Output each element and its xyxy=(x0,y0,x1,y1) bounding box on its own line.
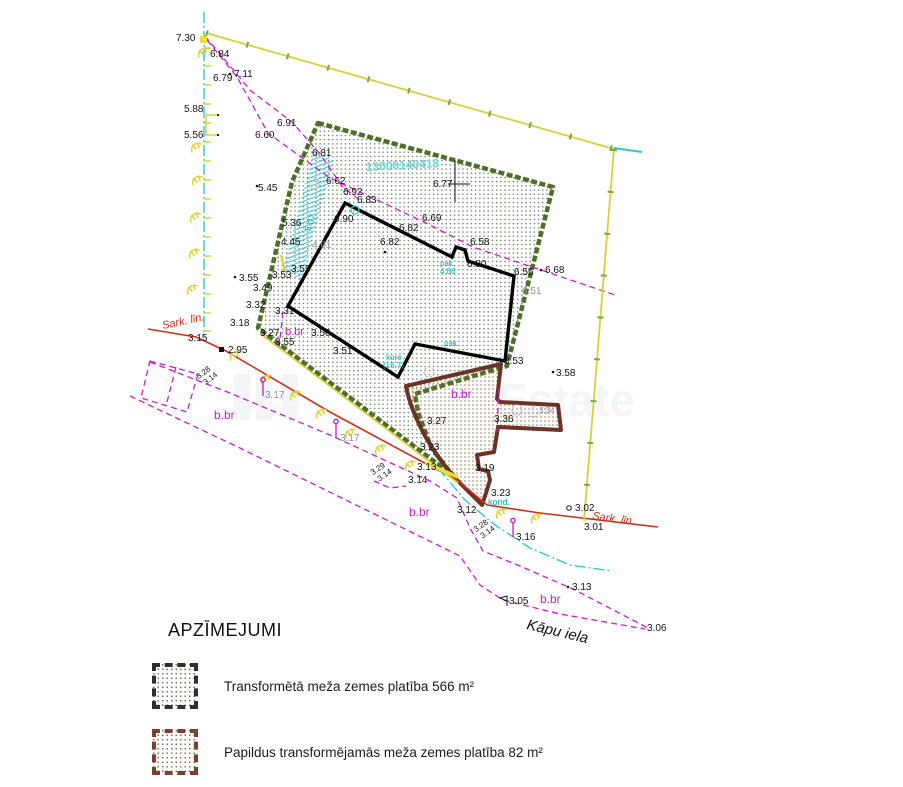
elevation-label: 3.51 xyxy=(333,346,353,357)
area-code-label: b.br xyxy=(540,592,561,606)
elevation-label: 4.45 xyxy=(281,237,301,248)
tree-icon xyxy=(376,445,385,454)
elevation-label: 3.53 xyxy=(504,356,524,367)
additional-forest-swatch xyxy=(152,729,198,775)
elevation-label: 6.58 xyxy=(470,237,490,248)
elevation-label: 3.17 xyxy=(265,390,285,401)
tree-icon xyxy=(317,409,326,418)
tree-icon xyxy=(190,249,199,258)
elevation-label: 3.23 xyxy=(420,442,440,453)
elevation-label: 3.13 xyxy=(417,462,437,473)
sign-post-icon xyxy=(334,419,338,438)
elevation-label: 3.19 xyxy=(475,463,495,474)
elevation-label: 3.53 xyxy=(272,270,292,281)
legend-item-additional-forest: Papildus transformējamās meža zemes plat… xyxy=(152,729,543,775)
elevation-label: 6.68 xyxy=(545,265,565,276)
area-code-label: b.br xyxy=(451,387,472,401)
fence-right xyxy=(584,149,614,521)
tree-icon xyxy=(532,514,541,523)
gate-bracket-icon xyxy=(206,115,218,135)
road-band-lower xyxy=(130,396,645,629)
elevation-label: 3.31 xyxy=(275,306,295,317)
area-code-label: b.br xyxy=(409,505,430,519)
bracket-dot xyxy=(217,134,219,136)
elevation-label: 6.90 xyxy=(334,214,354,225)
sign-head xyxy=(334,419,338,423)
pole-square-icon xyxy=(200,36,207,43)
tree-icon xyxy=(193,176,202,185)
corner-tick xyxy=(614,148,642,152)
elevation-label: 3.49 xyxy=(253,283,273,294)
elevation-label: 3.55 xyxy=(291,264,311,275)
elevation-label: 3.12 xyxy=(457,505,477,516)
elevation-label: 7.30 xyxy=(176,33,196,44)
elevation-label: 3.02 xyxy=(575,503,595,514)
tree-icon xyxy=(188,285,197,294)
map-text-label: pak. xyxy=(444,339,459,348)
sign-post-icon xyxy=(511,518,515,537)
elevation-label: 5.88 xyxy=(184,104,204,115)
watermark-bar xyxy=(234,374,250,420)
elevation-label: 6.69 xyxy=(422,213,442,224)
survey-plan-page: Estate 7.306.847.116.795.885.566.916.606… xyxy=(0,0,903,787)
road-rect-divider xyxy=(166,367,176,406)
elevation-label: 6.84 xyxy=(210,49,230,60)
elevation-label: 3.01 xyxy=(584,522,604,533)
elevation-label: 3.16 xyxy=(516,532,536,543)
elevation-label: 6.82 xyxy=(399,223,419,234)
elevation-label: 4.61 xyxy=(312,240,332,251)
elevation-label: 3.55 xyxy=(239,273,259,284)
tree-icon xyxy=(192,143,201,152)
elevation-label: 6.55 xyxy=(514,267,534,278)
legend-item-label: Papildus transformējamās meža zemes plat… xyxy=(224,745,543,760)
flag-mark-icon xyxy=(500,596,507,606)
curb-height-fraction: 3.283.14 xyxy=(194,363,219,388)
point-dot xyxy=(234,276,237,279)
elevation-label: 3.27 xyxy=(427,416,447,427)
bracket-dot xyxy=(217,114,219,116)
legend-title: APZĪMEJUMI xyxy=(168,620,282,641)
boundary-mark-square xyxy=(219,347,224,352)
road-rect xyxy=(141,361,198,412)
point-dot xyxy=(552,371,555,374)
elevation-label: 6.82 xyxy=(380,237,400,248)
elevation-label: 3.17 xyxy=(340,433,360,444)
elevation-label: 4.86 xyxy=(440,267,456,276)
elevation-label: 3.32 xyxy=(246,300,266,311)
elevation-label: 6.77 xyxy=(433,179,453,190)
elevation-label: 6.51 xyxy=(522,286,542,297)
legend-item-transformed-forest: Transformētā meža zemes platība 566 m² xyxy=(152,663,474,709)
elevation-label: 3.36 xyxy=(494,414,514,425)
point-dot xyxy=(384,251,387,254)
transformed-forest-swatch xyxy=(152,663,198,709)
elevation-label: 3.15 xyxy=(188,333,208,344)
elevation-label: 3.56 xyxy=(311,328,331,339)
legend-item-label: Transformētā meža zemes platība 566 m² xyxy=(224,679,474,694)
point-dot xyxy=(540,269,543,272)
elevation-label: 5.36 xyxy=(282,218,302,229)
sign-head xyxy=(511,518,515,522)
elevation-label: 5.45 xyxy=(258,183,278,194)
map-text-label: kond. xyxy=(488,497,510,507)
elevation-label: 3.58 xyxy=(556,368,576,379)
elevation-label: 3.05 xyxy=(509,596,529,607)
elevation-label: 6.62 xyxy=(326,176,346,187)
tree-icon xyxy=(497,509,506,518)
elevation-label: 6.81 xyxy=(312,148,332,159)
elevation-label: 3.55 xyxy=(275,337,295,348)
tree-icon xyxy=(406,461,415,470)
point-circle xyxy=(567,506,572,511)
map-text-label: Kāpu iela xyxy=(525,616,590,647)
elevation-label: 3.14 xyxy=(408,475,428,486)
elevation-label: 6.79 xyxy=(213,73,233,84)
map-text-label: Sark. līn. xyxy=(161,311,205,332)
elevation-label: 3.06 xyxy=(647,623,667,634)
area-code-label: b.br xyxy=(214,408,235,422)
elevation-label: 3.13 xyxy=(572,582,592,593)
elevation-label: 7.11 xyxy=(234,69,253,80)
tree-icon xyxy=(191,213,200,222)
elevation-label: 2.95 xyxy=(228,345,248,356)
map-text-label: (16.7) xyxy=(383,361,404,370)
elevation-label: 6.91 xyxy=(277,118,297,129)
point-dot xyxy=(567,586,570,589)
elevation-label: 5.56 xyxy=(184,130,204,141)
elevation-label: 6.60 xyxy=(255,130,275,141)
elevation-label: 3.34 xyxy=(539,406,555,415)
elevation-label: 3.18 xyxy=(230,318,250,329)
elevation-label: 6.83 xyxy=(357,195,377,206)
elevation-label: 6.80 xyxy=(467,259,487,270)
